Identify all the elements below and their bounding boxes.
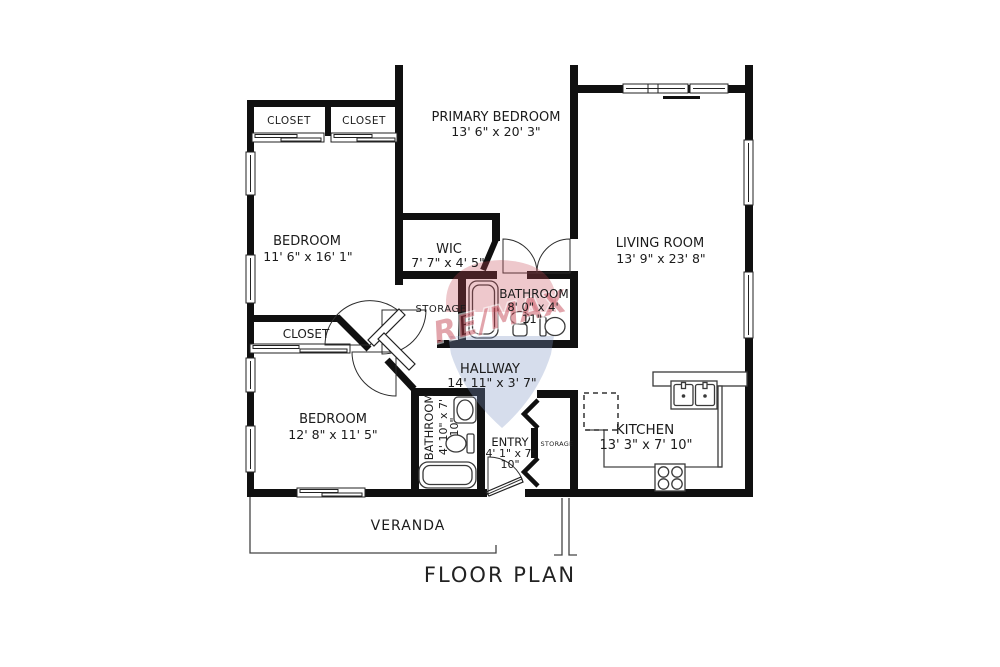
dims-bedroom-1: 11' 6" x 16' 1" [263, 249, 352, 264]
label-bathroom-1: BATHROOM [499, 287, 568, 301]
dims-bathroom-1-line2: 11" [522, 312, 542, 326]
wall-top-left [247, 100, 403, 107]
window-right-2 [744, 272, 753, 338]
dims-bathroom-2-line2: 10" [448, 417, 461, 436]
label-kitchen: KITCHEN [616, 422, 675, 438]
kitchen-stove [655, 464, 685, 491]
closet1-slider [252, 133, 324, 142]
window-left-4 [246, 426, 255, 472]
bathtub-2 [419, 462, 476, 488]
floor-plan-page: RE/MAX PRIMARY BEDROOM 13' 6" x 20' 3" C… [0, 0, 1000, 667]
kitchen-fridge-space [584, 393, 618, 430]
dims-living-room: 13' 9" x 23' 8" [616, 251, 705, 266]
wall-bathroom2-left [411, 388, 419, 497]
wall-closet-divider [325, 107, 331, 136]
window-bottom-bedroom2 [297, 488, 365, 497]
door-swing-vestibule-right [537, 239, 570, 273]
kitchen-sink [671, 381, 717, 409]
label-closet-2: CLOSET [342, 115, 386, 127]
walkway-left-line [554, 498, 562, 555]
dims-kitchen: 13' 3" x 7' 10" [600, 438, 693, 453]
label-bedroom-1: BEDROOM [273, 234, 341, 249]
label-storage-entry: STORAGE [540, 440, 573, 448]
closet2-slider [331, 133, 397, 142]
dims-hallway: 14' 11" x 3' 7" [447, 375, 536, 390]
label-primary-bedroom: PRIMARY BEDROOM [432, 110, 561, 125]
wall-accent-bar [663, 96, 700, 99]
floor-plan-drawing: RE/MAX PRIMARY BEDROOM 13' 6" x 20' 3" C… [0, 0, 1000, 667]
kitchen-peninsula [718, 386, 722, 467]
label-bathroom-2: BATHROOM [422, 394, 436, 461]
label-bedroom-2: BEDROOM [299, 412, 367, 427]
label-storage-hall: STORAGE [415, 304, 466, 315]
dims-primary-bedroom: 13' 6" x 20' 3" [451, 124, 540, 139]
dims-entry-line2: 10" [500, 458, 519, 471]
window-top-1 [623, 84, 688, 93]
wall-wic-top [395, 213, 500, 220]
watermark-balloon: RE/MAX [430, 260, 572, 428]
wall-primary-bedroom-left [395, 65, 403, 285]
label-living-room: LIVING ROOM [616, 236, 704, 251]
dims-bedroom-2: 12' 8" x 11' 5" [288, 427, 377, 442]
wall-closet3-top [247, 315, 340, 322]
wall-primary-living-divider-lower [570, 271, 578, 348]
page-title: FLOOR PLAN [424, 563, 576, 587]
door-bifold-storage2-lower [524, 458, 538, 486]
label-closet-1: CLOSET [267, 115, 311, 127]
window-top-2 [690, 84, 728, 93]
door-bifold-storage2-upper [524, 400, 538, 428]
walkway-right-line [569, 498, 577, 555]
window-left-3 [246, 358, 255, 392]
window-right-1 [744, 140, 753, 205]
dims-wic: 7' 7" x 4' 5" [411, 255, 484, 270]
window-left-2 [246, 255, 255, 303]
window-left-1 [246, 152, 255, 195]
label-veranda: VERANDA [371, 518, 446, 534]
label-closet-3: CLOSET [283, 327, 330, 341]
